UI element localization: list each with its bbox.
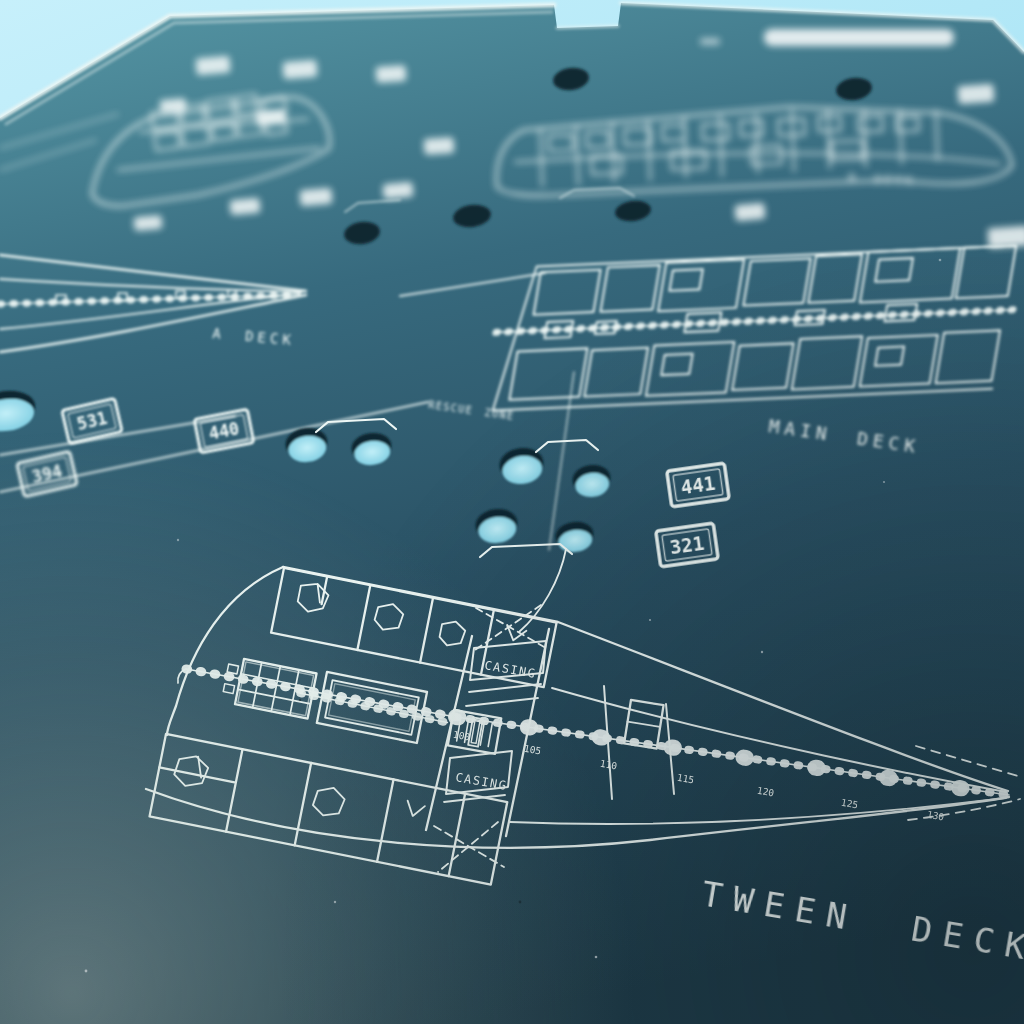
- shadow-vignette: [0, 0, 1024, 1024]
- etched-plate-scene: B DECK A DECK: [0, 0, 1024, 1024]
- photo-of-engraved-deck-plan-plate: B DECK A DECK: [0, 0, 1024, 1024]
